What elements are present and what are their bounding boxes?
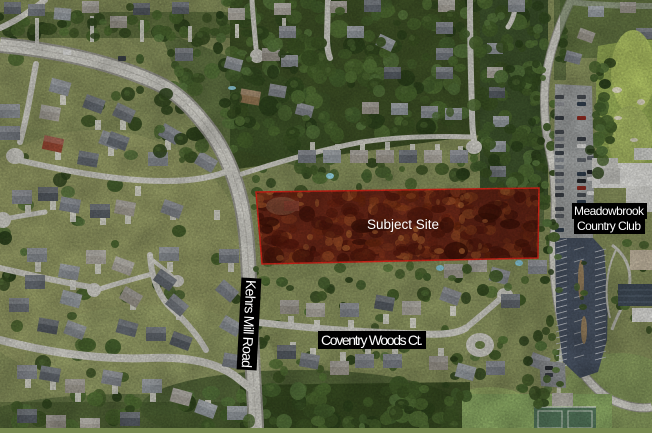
- svg-text:Meadowbrook: Meadowbrook: [574, 204, 645, 218]
- svg-text:Subject Site: Subject Site: [367, 217, 439, 232]
- svg-text:Coventry Woods Ct.: Coventry Woods Ct.: [321, 332, 423, 348]
- svg-text:Country Club: Country Club: [577, 219, 641, 233]
